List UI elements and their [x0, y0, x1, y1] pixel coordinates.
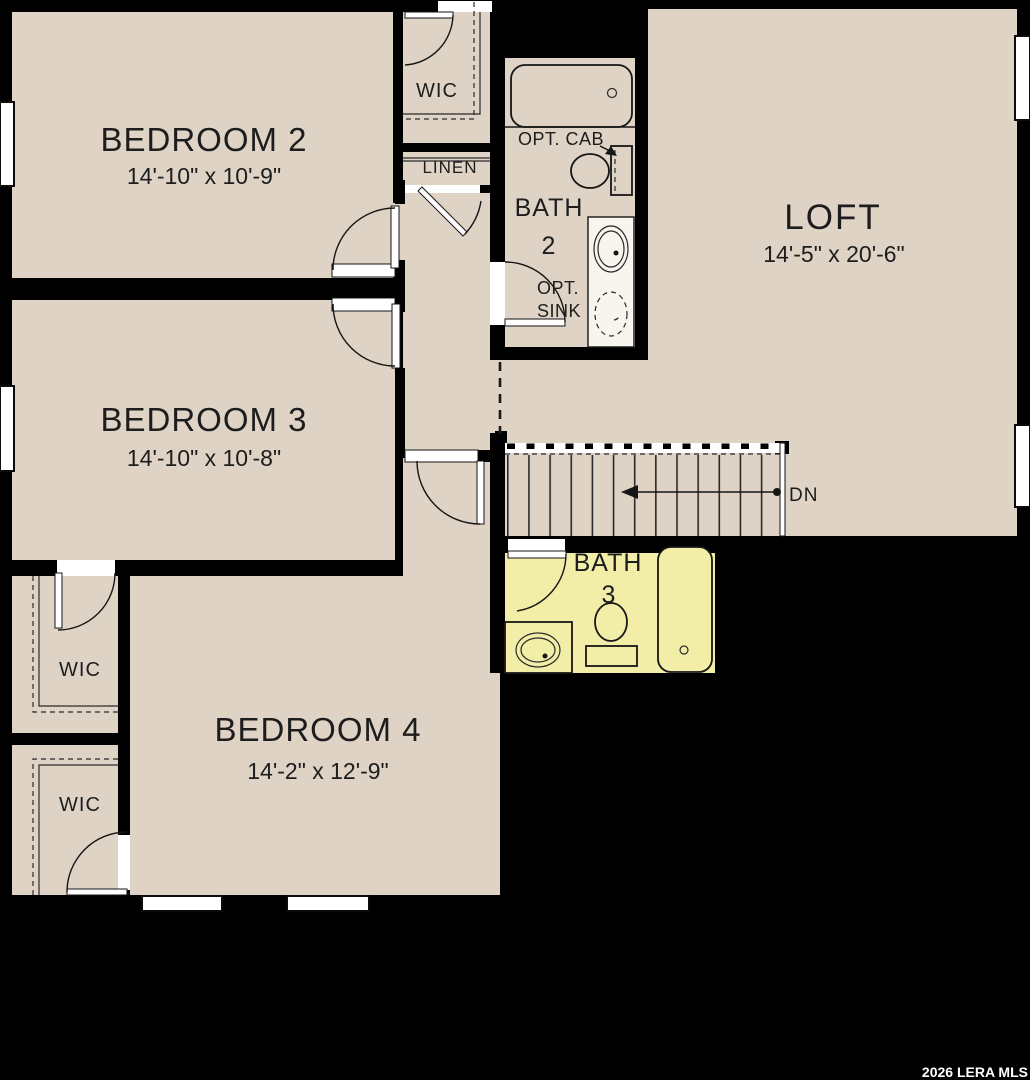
bedroom4-door-leaf — [477, 461, 484, 524]
wall-bath2-bottom — [505, 347, 648, 360]
loft-label: LOFT — [784, 198, 881, 237]
loft-lower-floor — [785, 442, 1017, 536]
wall-wic-linen — [393, 143, 505, 152]
bedroom2-label: BEDROOM 2 — [100, 121, 307, 158]
bath3-vanity — [505, 622, 572, 673]
wall-linen-stub — [395, 180, 405, 204]
bedroom4-doorway — [405, 450, 478, 462]
mls-watermark: 2026 LERA MLS — [922, 1064, 1028, 1080]
wic-mid-door-leaf — [55, 573, 62, 628]
bath2-number: 2 — [542, 232, 557, 260]
bedroom4-window-left — [142, 896, 222, 911]
linen-doorway — [405, 185, 480, 193]
bedroom3-doorway — [332, 298, 395, 311]
bath2-sink-drain — [614, 251, 619, 256]
bedroom2-doorway — [332, 264, 395, 277]
bath2-vanity — [588, 217, 634, 347]
floorplan-svg: BEDROOM 2 14'-10" x 10'-9" BEDROOM 3 14'… — [0, 0, 1030, 1080]
bedroom4-window-right — [287, 896, 369, 911]
wall-bed2-wic — [393, 12, 403, 143]
bath3-toilet-tank — [586, 646, 637, 666]
wic-mid-doorway — [57, 560, 115, 576]
opt-cab-label: OPT. CAB — [518, 129, 604, 149]
wall-bed2-bed3 — [0, 278, 395, 300]
wic-mid-floor — [12, 576, 118, 733]
wic-bottom-label: WIC — [59, 794, 101, 816]
bath3-sink-drain — [543, 654, 548, 659]
bath3-door-leaf — [508, 551, 566, 558]
linen-label: LINEN — [422, 158, 477, 177]
bath3-label: BATH — [574, 549, 643, 577]
wall-bed3-right — [395, 368, 405, 458]
bedroom2-window — [0, 102, 14, 186]
bedroom3-label: BEDROOM 3 — [100, 401, 307, 438]
wic-mid-label: WIC — [59, 659, 101, 681]
wic-bottom-floor — [12, 745, 118, 895]
floorplan-canvas: BEDROOM 2 14'-10" x 10'-9" BEDROOM 3 14'… — [0, 0, 1030, 1080]
wic-top-label: WIC — [416, 80, 458, 102]
wic-bottom-doorway — [118, 835, 130, 890]
stair-treads — [507, 455, 783, 536]
wic-top-door-leaf — [405, 12, 453, 18]
wall-wic-separator — [0, 733, 130, 745]
bedroom3-door-leaf — [392, 304, 400, 368]
wic-bottom-door-leaf — [67, 889, 127, 895]
down-label: DN — [789, 485, 818, 506]
bedroom3-dims: 14'-10" x 10'-8" — [127, 445, 281, 471]
bedroom4-label: BEDROOM 4 — [214, 711, 421, 748]
bedroom3-window — [0, 386, 14, 471]
bath3-number: 3 — [602, 581, 617, 609]
bath2-doorway — [490, 262, 505, 325]
loft-window-top — [1015, 36, 1030, 120]
bedroom2-door-leaf — [391, 206, 399, 268]
opt-sink-label-line2: SINK — [537, 301, 581, 321]
stair-right-edge — [780, 443, 785, 536]
bath2-toilet-bowl — [571, 154, 609, 188]
wic-top-doorway — [438, 1, 492, 12]
stair-arrow-origin-dot — [773, 488, 781, 496]
loft-passage-floor — [490, 360, 648, 443]
loft-window-bottom — [1015, 425, 1030, 507]
bath2-label: BATH — [515, 194, 584, 222]
bath2-tub — [511, 65, 632, 127]
opt-sink-label-line1: OPT. — [537, 278, 579, 298]
wall-bath2-loft — [635, 0, 648, 360]
stair-railing-hatch — [505, 443, 783, 453]
loft-dims: 14'-5" x 20'-6" — [763, 241, 904, 267]
bedroom4-dims: 14'-2" x 12'-9" — [247, 758, 388, 784]
wic-top-floor — [403, 12, 490, 143]
staircase — [505, 443, 785, 536]
bedroom2-dims: 14'-10" x 10'-9" — [127, 163, 281, 189]
